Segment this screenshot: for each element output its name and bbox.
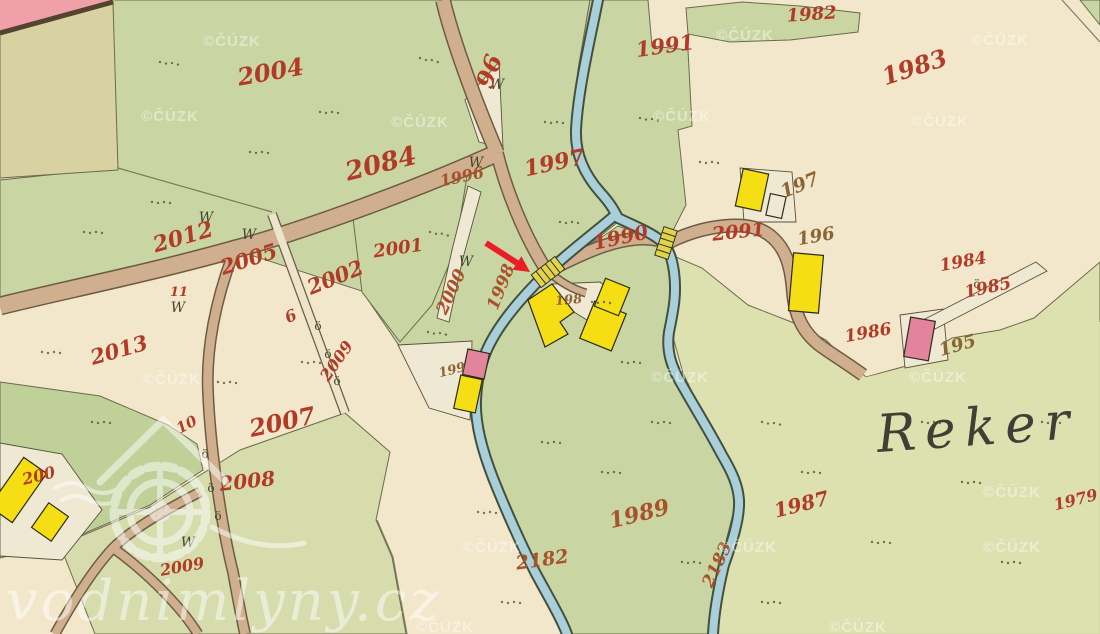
vegetation-dot [445, 333, 447, 335]
vegetation-dot [59, 352, 61, 354]
vegetation-dot [544, 121, 546, 123]
vegetation-dot [217, 381, 219, 383]
vegetation-dot [1013, 561, 1015, 563]
vegetation-dot [556, 121, 558, 123]
cuzk-watermark: ©ČÚZK [141, 107, 199, 125]
vegetation-dot [967, 482, 969, 484]
path-symbol: ö [207, 481, 214, 495]
vegetation-dot [562, 122, 564, 124]
vegetation-dot [47, 352, 49, 354]
vegetation-dot [871, 541, 873, 543]
vegetation-dot [103, 421, 105, 423]
vegetation-dot [613, 471, 615, 473]
vegetation-dot [419, 57, 421, 59]
building-196 [789, 253, 824, 313]
cuzk-watermark: ©ČÚZK [653, 107, 711, 125]
cuzk-watermark: ©ČÚZK [983, 483, 1041, 501]
vegetation-dot [425, 59, 427, 61]
vegetation-dot [559, 221, 561, 223]
vegetation-dot [639, 117, 641, 119]
map-viewport[interactable]: WWWWWWW ööööööö 200420849619961997199119… [0, 0, 1100, 634]
vegetation-dot [319, 362, 321, 364]
vegetation-dot [177, 63, 179, 65]
vegetation-dot [255, 152, 257, 154]
vegetation-dot [151, 201, 153, 203]
vegetation-dot [699, 562, 701, 564]
vegetation-dot [565, 222, 567, 224]
vegetation-dot [437, 61, 439, 63]
vegetation-dot [97, 422, 99, 424]
cuzk-watermark: ©ČÚZK [463, 538, 521, 556]
meadow-symbol: W [171, 300, 187, 316]
vegetation-dot [601, 471, 603, 473]
vegetation-dot [773, 601, 775, 603]
vegetation-dot [633, 361, 635, 363]
brand-watermark: vodnimlyny.cz [6, 569, 442, 634]
vegetation-dot [331, 111, 333, 113]
vegetation-dot [627, 362, 629, 364]
vegetation-dot [761, 421, 763, 423]
vegetation-dot [435, 233, 437, 235]
vegetation-dot [699, 161, 701, 163]
cuzk-watermark: ©ČÚZK [909, 368, 967, 386]
vegetation-dot [319, 111, 321, 113]
corner-parcels [0, 0, 118, 178]
vegetation-dot [483, 512, 485, 514]
vegetation-dot [813, 471, 815, 473]
vegetation-dot [95, 231, 97, 233]
vegetation-dot [1001, 561, 1003, 563]
cuzk-watermark: ©ČÚZK [651, 368, 709, 386]
vegetation-dot [773, 422, 775, 424]
cuzk-watermark: ©ČÚZK [911, 112, 969, 130]
vegetation-dot [779, 602, 781, 604]
cuzk-watermark: ©ČÚZK [391, 113, 449, 131]
vegetation-dot [261, 151, 263, 153]
vegetation-dot [645, 118, 647, 120]
vegetation-dot [541, 441, 543, 443]
vegetation-dot [571, 221, 573, 223]
parcel-number-label: 11 [170, 285, 188, 300]
vegetation-dot [171, 62, 173, 64]
vegetation-dot [779, 423, 781, 425]
vegetation-dot [91, 421, 93, 423]
vegetation-dot [889, 542, 891, 544]
vegetation-dot [53, 351, 55, 353]
vegetation-dot [1007, 562, 1009, 564]
vegetation-dot [883, 541, 885, 543]
vegetation-dot [429, 231, 431, 233]
vegetation-dot [439, 332, 441, 334]
vegetation-dot [519, 602, 521, 604]
vegetation-dot [427, 331, 429, 333]
vegetation-dot [441, 232, 443, 234]
vegetation-dot [83, 231, 85, 233]
vegetation-dot [325, 112, 327, 114]
vegetation-dot [577, 222, 579, 224]
vegetation-dot [495, 512, 497, 514]
vegetation-dot [507, 602, 509, 604]
vegetation-dot [657, 422, 659, 424]
vegetation-dot [609, 302, 611, 304]
vegetation-dot [163, 201, 165, 203]
vegetation-dot [433, 332, 435, 334]
vegetation-dot [597, 302, 599, 304]
vegetation-dot [301, 361, 303, 363]
cuzk-watermark: ©ČÚZK [203, 32, 261, 50]
vegetation-dot [157, 202, 159, 204]
vegetation-dot [547, 442, 549, 444]
vegetation-dot [877, 542, 879, 544]
vegetation-dot [705, 162, 707, 164]
vegetation-dot [307, 362, 309, 364]
vegetation-dot [101, 232, 103, 234]
vegetation-dot [550, 122, 552, 124]
vegetation-dot [41, 351, 43, 353]
vegetation-dot [693, 561, 695, 563]
vegetation-dot [761, 601, 763, 603]
vegetation-dot [559, 442, 561, 444]
vegetation-dot [447, 234, 449, 236]
vegetation-dot [501, 601, 503, 603]
vegetation-dot [767, 422, 769, 424]
cuzk-watermark: ©ČÚZK [719, 538, 777, 556]
cuzk-watermark: ©ČÚZK [983, 538, 1041, 556]
cuzk-watermark: ©ČÚZK [971, 31, 1029, 49]
vegetation-dot [767, 602, 769, 604]
vegetation-dot [669, 422, 671, 424]
vegetation-dot [431, 59, 433, 61]
vegetation-dot [109, 422, 111, 424]
vegetation-dot [489, 511, 491, 513]
vegetation-dot [619, 472, 621, 474]
vegetation-dot [819, 472, 821, 474]
vegetation-dot [717, 162, 719, 164]
meadow-symbol: W [242, 227, 258, 243]
vegetation-dot [961, 481, 963, 483]
vegetation-dot [607, 472, 609, 474]
path-symbol: ö [314, 319, 321, 333]
parcel-number-label: 1982 [786, 2, 837, 26]
vegetation-dot [711, 161, 713, 163]
vegetation-dot [477, 511, 479, 513]
path-symbol: ö [214, 509, 221, 523]
cuzk-watermark: ©ČÚZK [416, 618, 474, 634]
vegetation-dot [801, 471, 803, 473]
vegetation-dot [313, 361, 315, 363]
cuzk-watermark: ©ČÚZK [143, 370, 201, 388]
vegetation-dot [267, 152, 269, 154]
vegetation-dot [979, 482, 981, 484]
meadow-symbol: W [459, 254, 475, 270]
vegetation-dot [229, 381, 231, 383]
vegetation-dot [169, 202, 171, 204]
vegetation-dot [651, 421, 653, 423]
vegetation-dot [513, 601, 515, 603]
vegetation-dot [159, 61, 161, 63]
vegetation-dot [687, 562, 689, 564]
cuzk-watermark: ©ČÚZK [716, 26, 774, 44]
vegetation-dot [249, 151, 251, 153]
vegetation-dot [89, 232, 91, 234]
vegetation-dot [591, 301, 593, 303]
vegetation-dot [1019, 562, 1021, 564]
vegetation-dot [807, 472, 809, 474]
vegetation-dot [973, 481, 975, 483]
vegetation-dot [553, 441, 555, 443]
vegetation-dot [235, 382, 237, 384]
vegetation-dot [639, 362, 641, 364]
vegetation-dot [223, 382, 225, 384]
vegetation-dot [165, 62, 167, 64]
house-number-label: 198 [555, 292, 583, 309]
vegetation-dot [337, 112, 339, 114]
vegetation-dot [681, 561, 683, 563]
vegetation-dot [603, 301, 605, 303]
vegetation-dot [663, 421, 665, 423]
cadastral-map: WWWWWWW ööööööö 200420849619961997199119… [0, 0, 1100, 634]
vegetation-dot [621, 361, 623, 363]
cuzk-watermark: ©ČÚZK [829, 618, 887, 634]
